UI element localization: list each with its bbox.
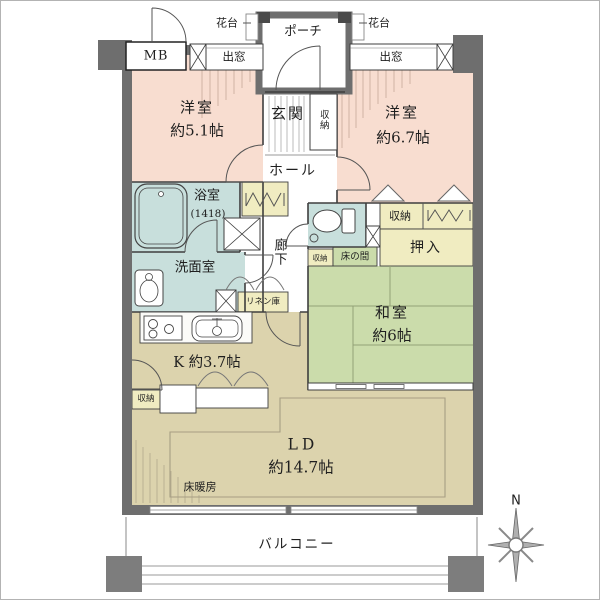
porch-label: ポーチ — [284, 25, 322, 38]
kitchen-storage-label: 収納 — [137, 395, 154, 404]
compass-rose — [488, 508, 544, 582]
flower-stand-left-label: 花台 — [216, 18, 238, 29]
bathroom-size: (1418) — [191, 209, 226, 220]
bay-window-left-label: 出窓 — [223, 51, 246, 63]
floor-plan-drawing — [0, 0, 600, 600]
compass-north-label: N — [511, 495, 521, 508]
meter-box-label: MB — [144, 50, 169, 63]
bath-side-closet — [242, 182, 288, 216]
japanese-room-name: 和室 — [375, 306, 409, 321]
living-dining-name: LD — [288, 437, 319, 453]
tokonoma-label: 床の間 — [341, 252, 370, 262]
balcony-windows — [150, 507, 417, 514]
western-room-2-size: 約6.7帖 — [376, 131, 430, 146]
western-room-2-name: 洋室 — [385, 106, 419, 121]
corridor-label: 廊下 — [273, 238, 286, 266]
balcony-label: バルコニー — [258, 538, 335, 552]
kitchen-counter — [140, 312, 252, 343]
entrance-label: 玄関 — [271, 107, 305, 122]
entrance-storage-label: 収納 — [318, 110, 328, 131]
bedroom-storage-label: 収納 — [389, 211, 411, 222]
western-room-1-name: 洋室 — [180, 101, 214, 116]
western-room-1-floor — [132, 55, 263, 182]
floor-plan: MB 出窓 出窓 花台 花台 ポーチ 洋室 約5.1帖 玄関 収納 ホール 洋室… — [0, 0, 600, 600]
japanese-room-size: 約6帖 — [372, 329, 412, 344]
bathroom-name: 浴室 — [194, 190, 220, 203]
kitchen-label: K 約3.7帖 — [173, 356, 241, 371]
hallway-storage-label: 収納 — [313, 254, 328, 262]
sliding-partition — [308, 383, 473, 390]
floor-heating-label: 床暖房 — [184, 482, 217, 493]
western-room-1-size: 約5.1帖 — [170, 124, 224, 139]
balcony-structure — [106, 517, 484, 592]
flower-stand-right-label: 花台 — [368, 18, 390, 29]
washbasin-icon — [135, 270, 163, 306]
living-dining-size: 約14.7帖 — [268, 460, 334, 476]
washroom-label: 洗面室 — [175, 261, 216, 275]
hall-label: ホール — [269, 164, 317, 178]
oshiire-label: 押入 — [410, 241, 442, 255]
linen-closet-label: リネン庫 — [246, 298, 280, 307]
bay-window-right-label: 出窓 — [380, 51, 403, 63]
